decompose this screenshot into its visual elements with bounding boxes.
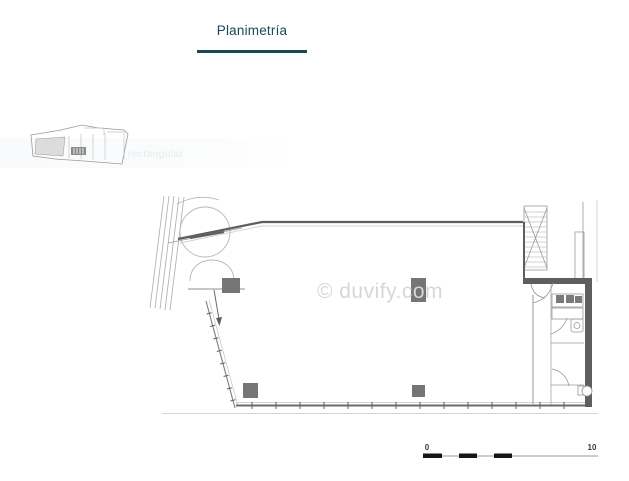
door-swing [533, 283, 553, 303]
entrance-area [188, 289, 245, 326]
entrance-arrow-icon [216, 317, 222, 326]
top-exterior-wall [168, 222, 523, 243]
facade-hatch-lines [150, 196, 184, 310]
door-swing [552, 369, 569, 386]
service-rooms [531, 283, 592, 405]
slanted-facade-wall [206, 300, 238, 408]
appliance [575, 296, 582, 303]
scale-bar: 0 10 [423, 443, 598, 458]
appliance [566, 295, 574, 303]
plan-watermark-text: © duvify.com [296, 280, 464, 304]
floorplan-figure: 0 10 © duvify.com [0, 0, 629, 481]
staircase [524, 206, 547, 279]
right-edge-shaft [575, 200, 597, 282]
column [412, 385, 425, 397]
appliance [556, 295, 564, 303]
scale-start-label: 0 [425, 443, 430, 452]
column [243, 383, 258, 398]
scale-end-label: 10 [588, 443, 597, 452]
wall-column-round [582, 386, 592, 396]
column [222, 278, 240, 293]
floorplan-drawing: 0 10 [0, 0, 629, 481]
toilet [571, 319, 583, 332]
door-swing [551, 318, 567, 334]
